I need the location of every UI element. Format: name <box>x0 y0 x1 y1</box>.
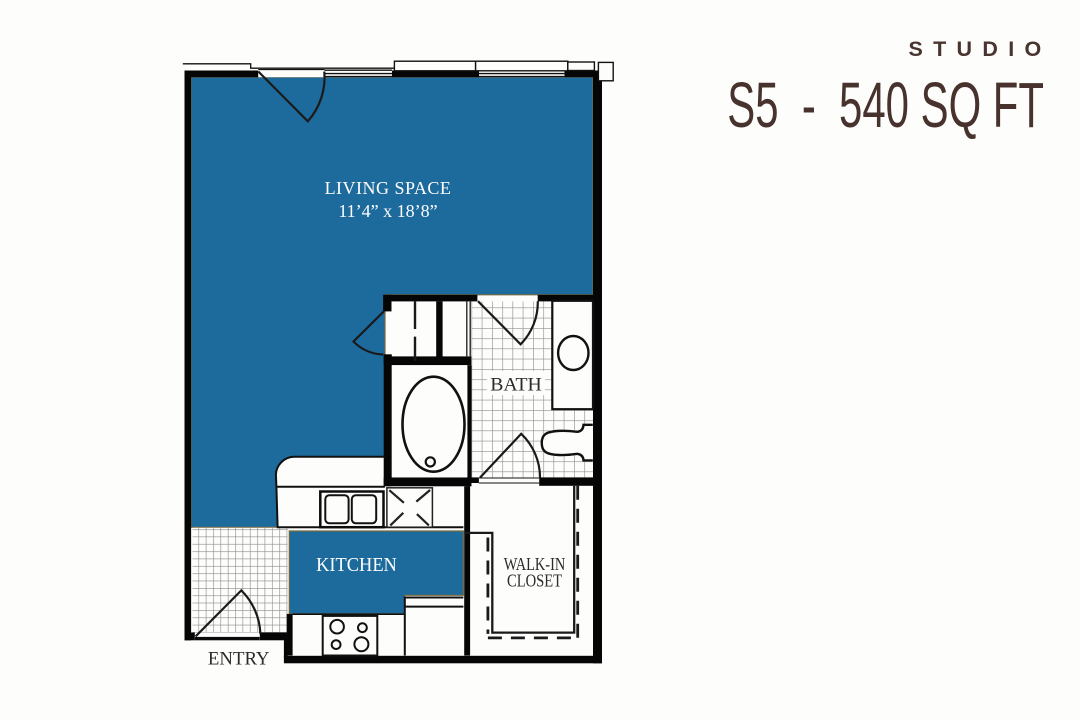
svg-text:ENTRY: ENTRY <box>208 648 270 669</box>
svg-text:CLOSET: CLOSET <box>507 570 562 591</box>
svg-text:LIVING SPACE: LIVING SPACE <box>325 178 452 198</box>
svg-text:11’4” x 18’8”: 11’4” x 18’8” <box>338 201 437 221</box>
svg-text:S5 - 540 SQ FT: S5 - 540 SQ FT <box>727 70 1044 141</box>
svg-text:STUDIO: STUDIO <box>908 37 1051 61</box>
svg-text:KITCHEN: KITCHEN <box>316 554 397 576</box>
svg-text:BATH: BATH <box>490 375 542 396</box>
